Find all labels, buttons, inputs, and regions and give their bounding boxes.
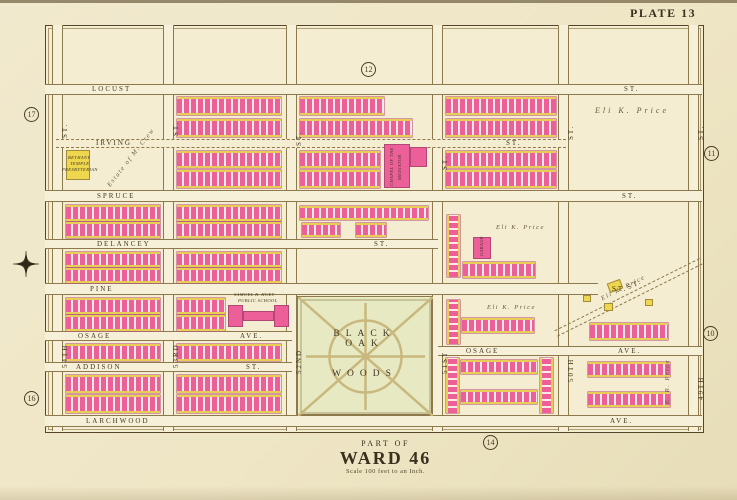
house-row bbox=[446, 151, 556, 168]
caption-ward: WARD 46 bbox=[308, 448, 463, 468]
park-name-line1: BLACK OAK bbox=[298, 329, 431, 349]
house-row bbox=[177, 151, 281, 168]
street-label: DELANCEY bbox=[97, 240, 151, 248]
street-horizontal-pine bbox=[45, 283, 598, 295]
caption-part-of: PART OF bbox=[308, 439, 463, 448]
house-row bbox=[356, 223, 386, 237]
map-label: BETHANY bbox=[68, 155, 90, 160]
street-label: 51ST bbox=[441, 351, 449, 374]
house-row bbox=[300, 170, 380, 188]
street-label: ST. bbox=[567, 125, 575, 140]
street-label: 54TH bbox=[61, 344, 69, 368]
compass-rose-icon bbox=[13, 251, 39, 277]
house-row bbox=[461, 390, 537, 404]
street-label: OSAGE bbox=[78, 332, 111, 340]
street-label: LARCHWOOD bbox=[86, 417, 150, 425]
street-label: PINE bbox=[90, 285, 114, 293]
house-row bbox=[590, 323, 668, 340]
park-name-line2: WOODS bbox=[298, 369, 431, 379]
house-row bbox=[447, 300, 460, 344]
street-label: ST. bbox=[441, 155, 449, 170]
house-row bbox=[302, 223, 340, 237]
house-row bbox=[300, 206, 428, 220]
street-label: ST. bbox=[697, 125, 705, 140]
park-paths-icon bbox=[298, 297, 433, 416]
house-row bbox=[177, 315, 225, 331]
house-row bbox=[447, 215, 460, 277]
street-label: AVE. bbox=[240, 332, 263, 340]
street-label: ST. bbox=[295, 131, 303, 146]
house-row bbox=[300, 151, 380, 168]
caption-scale: Scale 100 feet to an Inch. bbox=[308, 468, 463, 475]
street-label: ST. bbox=[624, 85, 639, 93]
street-label: ST. bbox=[622, 192, 637, 200]
house-row bbox=[446, 170, 556, 188]
house-row bbox=[66, 315, 160, 331]
map-caption: PART OF WARD 46 Scale 100 feet to an Inc… bbox=[308, 439, 463, 475]
house-row bbox=[588, 392, 670, 407]
building-huey-school-center bbox=[243, 311, 274, 321]
house-row bbox=[66, 252, 160, 267]
street-label: SPRUCE bbox=[97, 192, 135, 200]
street-label: ST. bbox=[506, 139, 521, 147]
street-label: 49TH bbox=[697, 376, 705, 400]
house-row bbox=[177, 205, 281, 221]
atlas-page: BLACK OAK WOODS PLATE 13 PART OF WARD 46… bbox=[0, 0, 737, 500]
building bbox=[645, 299, 653, 306]
house-row bbox=[177, 344, 281, 361]
house-row bbox=[177, 252, 281, 267]
house-row bbox=[446, 97, 556, 115]
house-row bbox=[300, 97, 384, 115]
street-label: 50TH bbox=[567, 358, 575, 382]
plate-ref-16: 16 bbox=[24, 391, 39, 406]
street-label: AVE. bbox=[610, 417, 633, 425]
street-label: ST. bbox=[374, 240, 389, 248]
map-label: Eli K. Price bbox=[595, 106, 669, 115]
map-label: SAMUEL B. HUEY bbox=[234, 292, 275, 297]
map-label: TEMPLE bbox=[70, 161, 89, 166]
map-label: PRESBYTERIAN bbox=[62, 167, 98, 172]
map-label: E. R. Price bbox=[664, 359, 671, 404]
map-stage: BLACK OAK WOODS PLATE 13 PART OF WARD 46… bbox=[0, 0, 737, 500]
street-label: ST. bbox=[246, 363, 261, 371]
house-row bbox=[177, 170, 281, 188]
street-label: ST. bbox=[61, 123, 69, 138]
house-row bbox=[177, 119, 281, 137]
street-label: AVE. bbox=[618, 347, 641, 355]
house-row bbox=[300, 119, 412, 137]
building bbox=[583, 295, 591, 302]
street-label: 53RD bbox=[172, 343, 180, 368]
map-label: Eli K. Price bbox=[487, 304, 536, 311]
street-label: ADDISON bbox=[76, 363, 122, 371]
map-label: CHAPEL OF THE bbox=[389, 147, 394, 186]
house-row bbox=[66, 205, 160, 221]
house-row bbox=[66, 344, 160, 361]
house-row bbox=[177, 375, 281, 393]
house-row bbox=[177, 97, 281, 115]
street-label: OSAGE bbox=[466, 347, 499, 355]
house-row bbox=[177, 268, 281, 283]
house-row bbox=[66, 298, 160, 314]
house-row bbox=[66, 375, 160, 393]
house-row bbox=[177, 298, 225, 314]
street-label: IRVING bbox=[96, 139, 132, 147]
building bbox=[604, 303, 613, 311]
plate-ref-17: 17 bbox=[24, 107, 39, 122]
street-horizontal-locust bbox=[45, 84, 702, 95]
house-row bbox=[66, 395, 160, 413]
house-row bbox=[588, 362, 670, 377]
plate-ref-14: 14 bbox=[483, 435, 498, 450]
black-oak-woods-park: BLACK OAK WOODS bbox=[297, 296, 432, 415]
house-row bbox=[463, 262, 535, 278]
street-horizontal-irving bbox=[56, 139, 566, 148]
house-row bbox=[446, 119, 556, 137]
house-row bbox=[177, 395, 281, 413]
map-label: PUBLIC SCHOOL bbox=[238, 298, 278, 303]
street-horizontal-spruce bbox=[45, 190, 702, 202]
building-huey-school-east-wing bbox=[274, 305, 289, 327]
house-row bbox=[66, 268, 160, 283]
house-row bbox=[461, 360, 537, 374]
plate-number: PLATE 13 bbox=[630, 6, 696, 21]
house-row bbox=[540, 358, 553, 413]
building bbox=[410, 147, 427, 167]
street-label: 52ND bbox=[295, 349, 303, 374]
house-row bbox=[66, 222, 160, 238]
street-label: LOCUST bbox=[92, 85, 131, 93]
map-label: MEDIATOR bbox=[397, 155, 402, 180]
house-row bbox=[177, 222, 281, 238]
map-label: GARAGE bbox=[479, 236, 484, 256]
plate-ref-10: 10 bbox=[703, 326, 718, 341]
plate-ref-12: 12 bbox=[361, 62, 376, 77]
street-label: ST. bbox=[172, 121, 180, 136]
building-huey-school-west-wing bbox=[228, 305, 243, 327]
plate-ref-11: 11 bbox=[704, 146, 719, 161]
map-label: Eli K. Price bbox=[496, 224, 545, 231]
house-row bbox=[462, 318, 534, 333]
